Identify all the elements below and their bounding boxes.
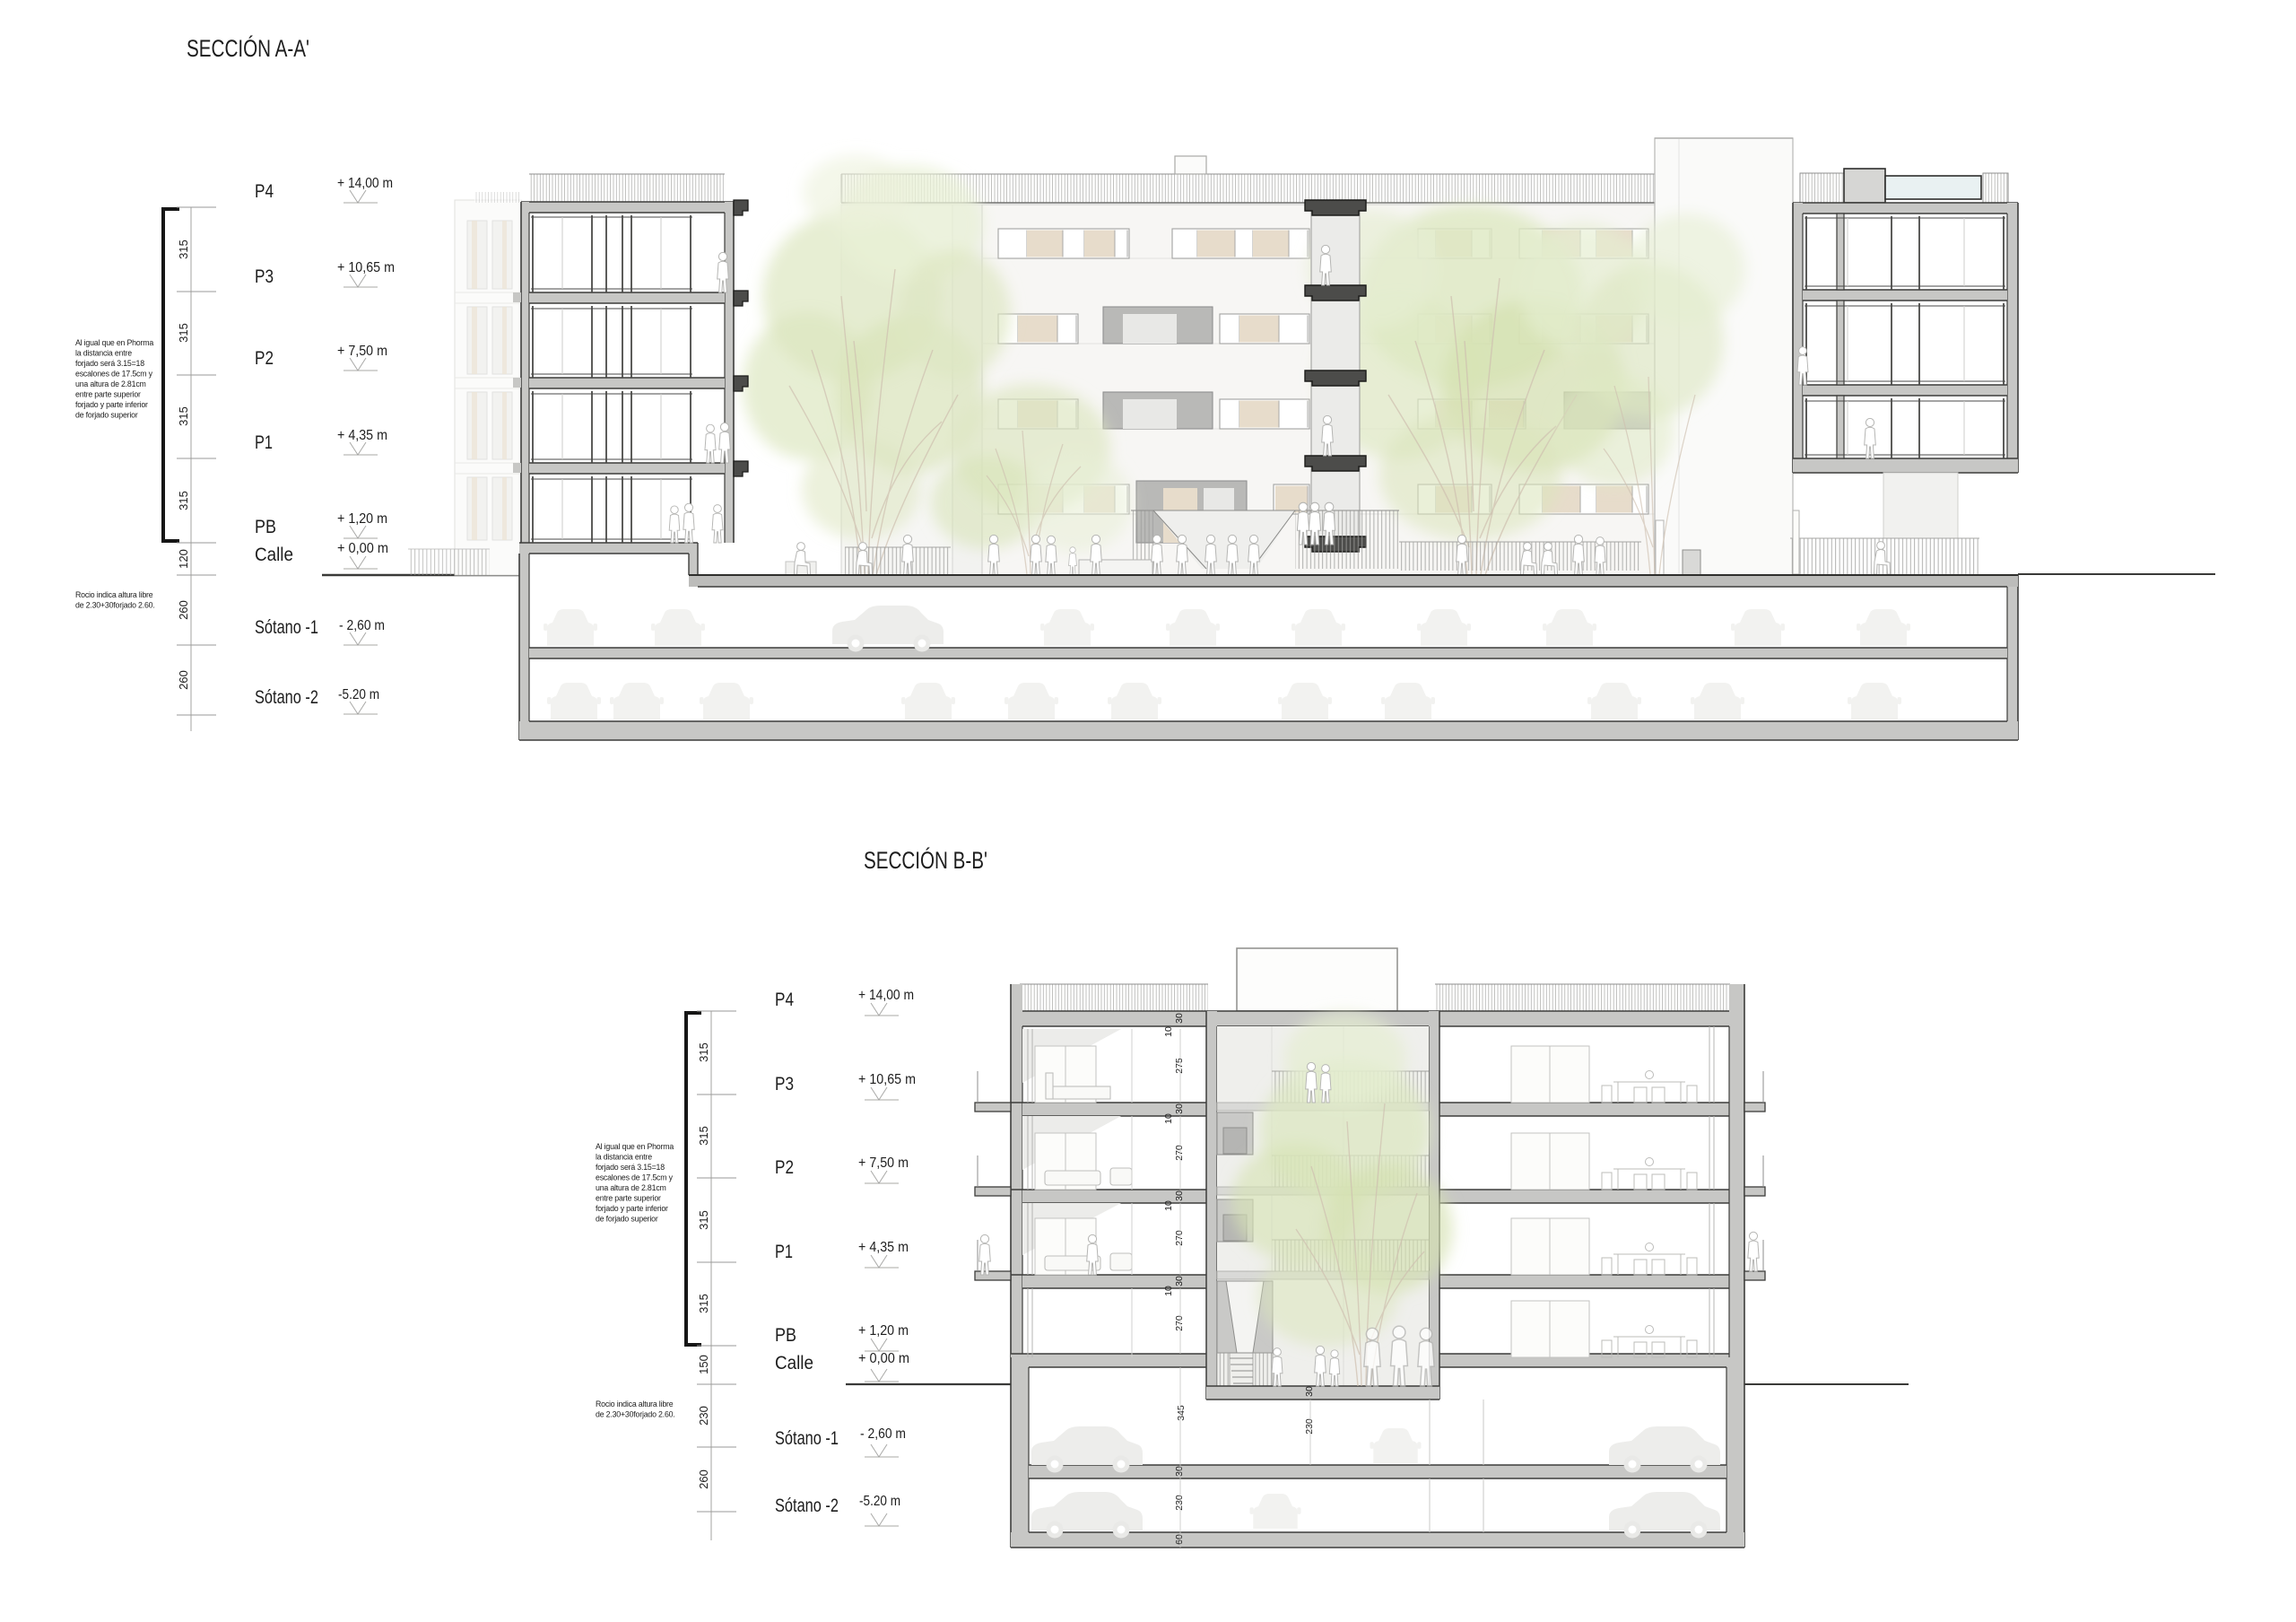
svg-text:de forjado superior: de forjado superior	[75, 411, 138, 420]
svg-text:+ 1,20 m: + 1,20 m	[337, 511, 387, 527]
svg-text:Sótano -2: Sótano -2	[775, 1496, 839, 1516]
svg-text:+ 1,20 m: + 1,20 m	[858, 1323, 909, 1339]
svg-text:forjado y parte inferior: forjado y parte inferior	[75, 400, 148, 409]
svg-text:P2: P2	[775, 1157, 794, 1178]
svg-text:315: 315	[697, 1210, 710, 1230]
svg-text:Sótano -1: Sótano -1	[775, 1428, 839, 1449]
svg-text:230: 230	[697, 1406, 710, 1426]
svg-text:P3: P3	[255, 266, 274, 287]
svg-text:de 2.30+30forjado 2.60.: de 2.30+30forjado 2.60.	[596, 1410, 675, 1419]
svg-text:315: 315	[177, 323, 190, 343]
svg-text:-5.20 m: -5.20 m	[859, 1494, 900, 1509]
svg-text:Calle: Calle	[255, 545, 293, 565]
svg-text:+ 7,50 m: + 7,50 m	[858, 1155, 909, 1171]
svg-text:una altura de 2.81cm: una altura de 2.81cm	[596, 1183, 666, 1192]
svg-text:30: 30	[1174, 1190, 1185, 1201]
svg-text:entre parte superior: entre parte superior	[75, 390, 141, 399]
svg-text:275: 275	[1174, 1058, 1185, 1074]
svg-text:10: 10	[1163, 1113, 1174, 1124]
svg-text:120: 120	[177, 549, 190, 569]
svg-text:270: 270	[1174, 1145, 1185, 1161]
svg-text:315: 315	[177, 240, 190, 259]
svg-text:PB: PB	[255, 517, 276, 537]
svg-text:10: 10	[1163, 1026, 1174, 1037]
svg-text:30: 30	[1174, 1013, 1185, 1024]
svg-text:270: 270	[1174, 1230, 1185, 1246]
svg-text:+ 0,00 m: + 0,00 m	[337, 541, 388, 556]
svg-text:10: 10	[1163, 1286, 1174, 1296]
svg-text:315: 315	[697, 1126, 710, 1146]
svg-text:Sótano -2: Sótano -2	[255, 687, 318, 708]
svg-text:Rocio indica altura libre: Rocio indica altura libre	[596, 1400, 674, 1408]
svg-text:230: 230	[1304, 1418, 1315, 1435]
svg-text:260: 260	[177, 670, 190, 690]
svg-text:forjado será 3.15=18: forjado será 3.15=18	[75, 359, 144, 368]
svg-text:345: 345	[1176, 1405, 1187, 1421]
svg-text:SECCIÓN A-A': SECCIÓN A-A'	[187, 34, 309, 62]
svg-text:315: 315	[697, 1042, 710, 1062]
svg-text:270: 270	[1174, 1315, 1185, 1331]
svg-text:315: 315	[177, 406, 190, 426]
svg-text:Al igual que en Phorma: Al igual que en Phorma	[75, 338, 153, 347]
svg-text:la distancia entre: la distancia entre	[75, 349, 132, 358]
svg-text:escalones de 17.5cm y: escalones de 17.5cm y	[596, 1173, 674, 1182]
svg-text:forjado será 3.15=18: forjado será 3.15=18	[596, 1163, 665, 1172]
svg-text:60: 60	[1174, 1534, 1185, 1545]
svg-text:P1: P1	[775, 1242, 793, 1262]
svg-text:315: 315	[697, 1294, 710, 1313]
svg-text:Sótano -1: Sótano -1	[255, 617, 318, 638]
svg-text:+ 0,00 m: + 0,00 m	[858, 1351, 909, 1366]
svg-text:P4: P4	[775, 990, 794, 1010]
svg-text:+ 4,35 m: + 4,35 m	[858, 1240, 909, 1255]
svg-text:- 2,60 m: - 2,60 m	[860, 1426, 906, 1442]
svg-text:P1: P1	[255, 432, 273, 453]
svg-text:+ 14,00 m: + 14,00 m	[337, 176, 393, 191]
svg-text:SECCIÓN B-B': SECCIÓN B-B'	[864, 846, 987, 874]
svg-text:de forjado superior: de forjado superior	[596, 1215, 658, 1224]
svg-text:de 2.30+30forjado 2.60.: de 2.30+30forjado 2.60.	[75, 601, 155, 610]
svg-text:230: 230	[1174, 1495, 1185, 1511]
svg-text:Calle: Calle	[775, 1353, 813, 1373]
svg-text:entre parte superior: entre parte superior	[596, 1194, 661, 1203]
svg-text:- 2,60 m: - 2,60 m	[339, 618, 385, 633]
svg-text:P4: P4	[255, 181, 274, 202]
svg-text:30: 30	[1174, 1276, 1185, 1286]
svg-text:150: 150	[697, 1355, 710, 1374]
svg-text:PB: PB	[775, 1325, 796, 1346]
svg-text:10: 10	[1163, 1200, 1174, 1211]
svg-text:-5.20 m: -5.20 m	[338, 687, 379, 702]
svg-text:+ 14,00 m: + 14,00 m	[858, 988, 914, 1003]
svg-text:30: 30	[1304, 1386, 1315, 1397]
svg-text:260: 260	[697, 1469, 710, 1489]
svg-text:P3: P3	[775, 1074, 794, 1094]
svg-text:30: 30	[1174, 1103, 1185, 1114]
svg-text:una altura de 2.81cm: una altura de 2.81cm	[75, 379, 146, 388]
svg-text:Rocio indica altura libre: Rocio indica altura libre	[75, 590, 153, 599]
svg-text:Al igual que en Phorma: Al igual que en Phorma	[596, 1142, 674, 1151]
svg-text:315: 315	[177, 491, 190, 510]
svg-text:P2: P2	[255, 348, 274, 369]
svg-text:+ 10,65 m: + 10,65 m	[858, 1072, 916, 1087]
svg-text:la distancia entre: la distancia entre	[596, 1153, 652, 1162]
svg-text:forjado y parte inferior: forjado y parte inferior	[596, 1204, 668, 1213]
svg-text:escalones de 17.5cm y: escalones de 17.5cm y	[75, 370, 153, 379]
svg-text:30: 30	[1174, 1466, 1185, 1477]
svg-text:+ 10,65 m: + 10,65 m	[337, 260, 395, 275]
svg-text:260: 260	[177, 600, 190, 620]
svg-text:+ 4,35 m: + 4,35 m	[337, 428, 387, 443]
svg-text:+ 7,50 m: + 7,50 m	[337, 344, 387, 359]
